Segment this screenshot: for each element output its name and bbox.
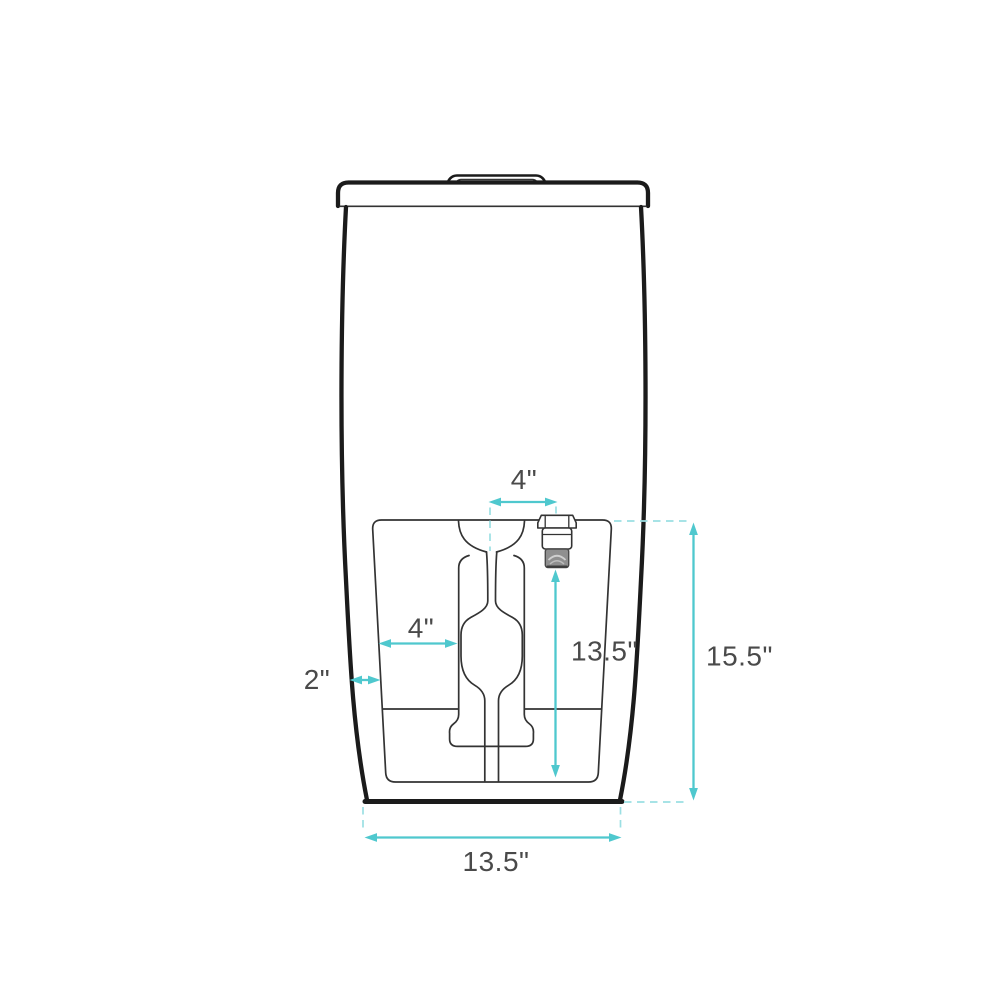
dim-label-overall-height: 15.5" <box>706 641 773 672</box>
body-outline-left <box>341 207 367 800</box>
trapway-funnel-left <box>459 521 487 552</box>
arrowhead-left <box>489 498 502 507</box>
arrowhead-right <box>609 833 622 842</box>
arrowhead-down <box>551 765 560 778</box>
arrowhead-up <box>551 570 560 583</box>
body-outline-right <box>620 207 646 800</box>
dim-label-valve-offset: 4" <box>511 464 538 495</box>
valve-flange <box>538 515 576 528</box>
arrowhead-right <box>368 676 381 685</box>
arrowhead-right <box>445 639 458 648</box>
valve-nut <box>542 528 571 549</box>
trapway <box>450 521 534 781</box>
arrowhead-up <box>689 523 698 536</box>
valve-coupling <box>545 549 568 568</box>
dim-label-panel-to-trapway: 4" <box>408 613 435 644</box>
dim-label-body-to-panel: 2" <box>304 664 331 695</box>
arrowhead-left <box>365 833 378 842</box>
arrowhead-right <box>545 498 558 507</box>
arrowhead-left <box>379 639 392 648</box>
trapway-funnel-right <box>497 521 525 552</box>
dim-label-valve-height: 13.5" <box>571 636 638 667</box>
dimension-valve-height: 13.5" <box>551 570 638 778</box>
supply-valve <box>538 515 576 567</box>
arrowhead-down <box>689 788 698 801</box>
dimension-diagram-page: 4" 4" 2" 13.5" <box>0 0 1000 1000</box>
toilet-rear-dimension-diagram: 4" 4" 2" 13.5" <box>0 0 1000 1000</box>
dimension-panel-to-trapway: 4" <box>379 613 458 648</box>
dim-label-base-width: 13.5" <box>463 846 530 877</box>
tank-lid <box>338 183 648 207</box>
dimension-body-to-panel: 2" <box>304 664 381 695</box>
trapway-column <box>450 556 534 747</box>
dimension-base-width: 13.5" <box>363 807 622 877</box>
tank-lid-fill <box>338 183 648 207</box>
